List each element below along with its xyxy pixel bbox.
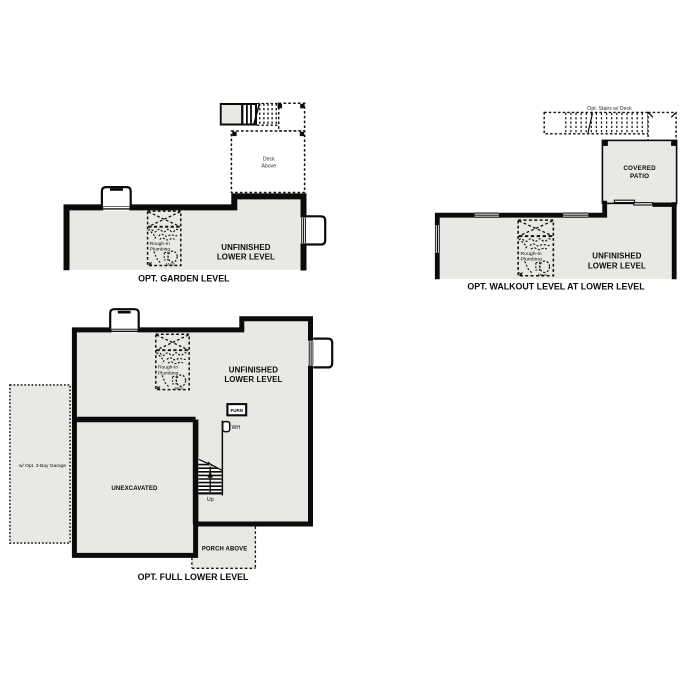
svg-text:COVERED: COVERED (623, 165, 656, 172)
svg-text:OPT. FULL LOWER LEVEL: OPT. FULL LOWER LEVEL (138, 572, 249, 582)
svg-text:Above: Above (261, 163, 276, 169)
svg-text:FURN: FURN (231, 408, 244, 413)
svg-text:Up: Up (207, 497, 214, 503)
svg-text:LOWER LEVEL: LOWER LEVEL (217, 252, 275, 261)
svg-text:LOWER LEVEL: LOWER LEVEL (588, 261, 646, 270)
svg-text:OPT. WALKOUT LEVEL AT LOWER LE: OPT. WALKOUT LEVEL AT LOWER LEVEL (467, 282, 645, 292)
svg-text:UNFINISHED: UNFINISHED (592, 252, 641, 261)
svg-text:Deck: Deck (263, 157, 275, 163)
svg-text:WH: WH (232, 425, 241, 431)
svg-text:UNFINISHED: UNFINISHED (229, 366, 278, 375)
svg-text:PORCH ABOVE: PORCH ABOVE (202, 546, 248, 552)
svg-text:LOWER LEVEL: LOWER LEVEL (224, 375, 282, 384)
svg-text:w/ Opt. 3-Bay Garage: w/ Opt. 3-Bay Garage (19, 463, 67, 469)
svg-text:Opt. Stairs w/ Deck: Opt. Stairs w/ Deck (587, 106, 632, 112)
svg-text:UNFINISHED: UNFINISHED (221, 243, 270, 252)
svg-text:UNEXCAVATED: UNEXCAVATED (111, 485, 158, 492)
svg-text:PATIO: PATIO (630, 173, 649, 180)
svg-text:OPT. GARDEN LEVEL: OPT. GARDEN LEVEL (138, 273, 230, 283)
